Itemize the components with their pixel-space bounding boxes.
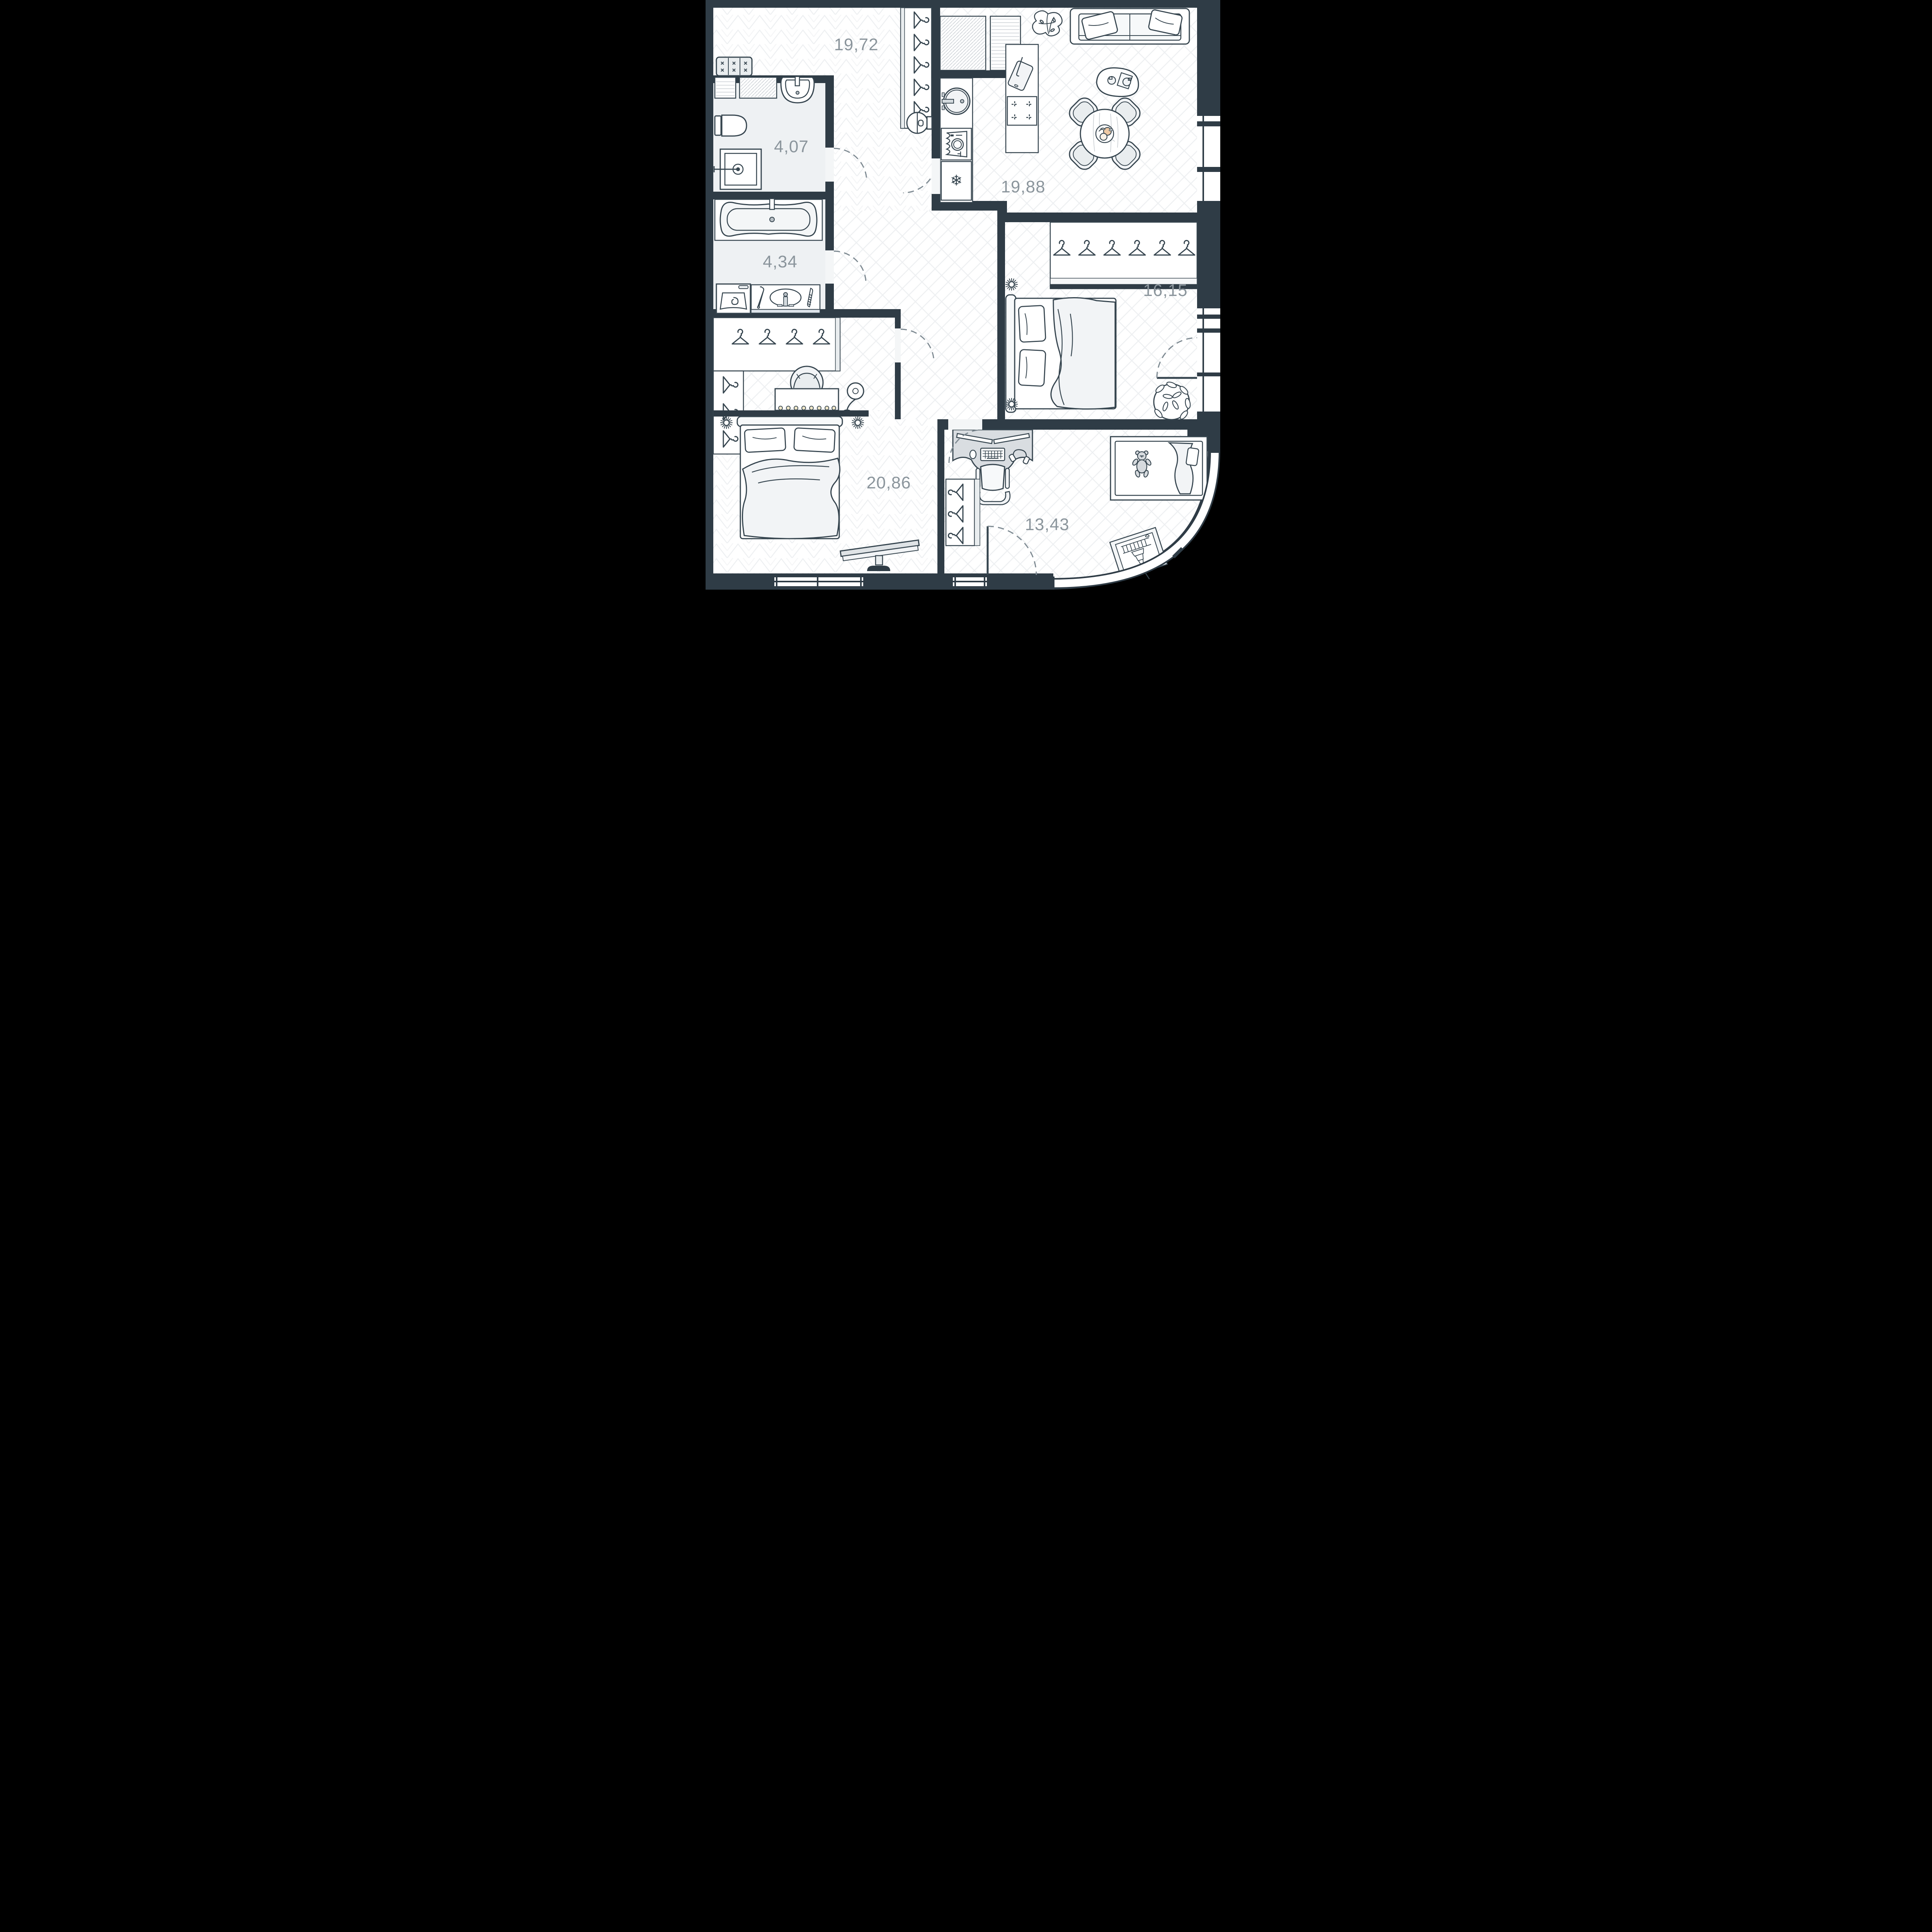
pillow	[1018, 305, 1046, 342]
floor-plan: 19,72 4,07	[706, 0, 1227, 594]
dishwasher	[941, 128, 971, 160]
coffee-table	[1097, 68, 1138, 97]
toilet	[715, 115, 747, 136]
bedroom-2-closet-top	[713, 318, 840, 371]
bathtub	[715, 199, 822, 240]
bedroom-2-window	[774, 577, 863, 586]
children-door-opening	[948, 419, 982, 430]
double-bed	[1006, 295, 1116, 412]
vanity-table-with-bulbs	[775, 389, 838, 410]
fridge: ❄	[941, 162, 971, 200]
wall-sink	[781, 77, 814, 103]
pillow	[794, 428, 835, 452]
pillow	[744, 428, 786, 452]
vanity-counter	[751, 285, 820, 313]
bedroom-2-partition-wall	[713, 410, 869, 417]
bathroom-2-area-label: 4,34	[763, 252, 798, 271]
bedroom-2-area-label: 20,86	[866, 473, 911, 492]
outside-right	[1220, 0, 1227, 594]
crib-pillow	[1186, 447, 1199, 466]
monstera-plant	[1032, 11, 1062, 36]
children-closet	[946, 479, 980, 546]
shower-tray	[714, 149, 761, 189]
tufted-bench	[716, 57, 752, 76]
oval-sink	[770, 289, 801, 306]
pillow	[1018, 349, 1046, 386]
hallway-closet	[901, 8, 932, 128]
kitchen-counter: ❄	[940, 78, 973, 202]
bedroom-2-door-opening	[895, 328, 901, 362]
children-area-label: 13,43	[1025, 515, 1069, 534]
sofa	[1070, 9, 1189, 44]
kitchen-window	[1197, 116, 1220, 201]
kitchen-island	[1006, 44, 1038, 153]
island-hob	[1007, 97, 1037, 125]
hallway-area-label: 19,72	[834, 35, 878, 54]
bathroom-2-door-opening	[825, 250, 834, 284]
double-bed	[737, 417, 842, 539]
snowflake-icon: ❄	[950, 173, 963, 189]
crib	[1111, 437, 1207, 500]
kitchen-door-opening	[932, 158, 940, 194]
washing-machine	[716, 284, 750, 313]
bathroom-door-opening	[825, 148, 834, 182]
balcony-door-window	[1197, 372, 1220, 412]
outside-bottom	[706, 590, 1227, 594]
fruit-plate	[1096, 125, 1114, 143]
bedroom-window	[1197, 308, 1220, 373]
children-window	[953, 577, 987, 586]
bathroom-area-label: 4,07	[774, 137, 809, 156]
bedroom-area-label: 16,15	[1143, 281, 1187, 300]
mouse-icon	[970, 450, 976, 459]
bedroom-closet	[1050, 222, 1197, 289]
kitchen-area-label: 19,88	[1001, 177, 1045, 196]
